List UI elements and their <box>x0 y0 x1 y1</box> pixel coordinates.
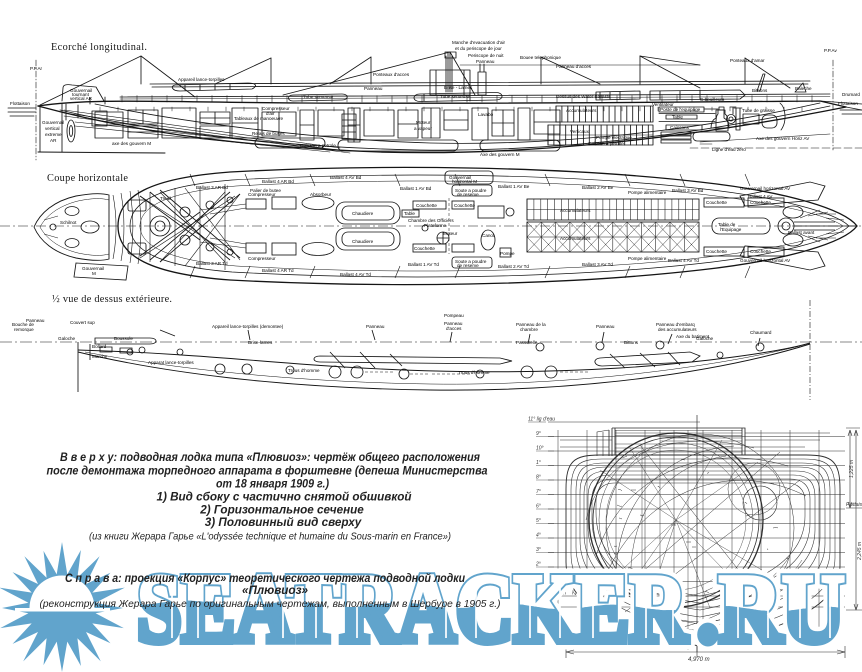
svg-text:Ballast 4 AV Td: Ballast 4 AV Td <box>668 258 699 263</box>
svg-text:Coupe horizontale: Coupe horizontale <box>47 173 128 184</box>
svg-text:Moteur: Moteur <box>416 120 431 125</box>
svg-text:C.bouilleurs: C.bouilleurs <box>700 97 725 102</box>
svg-text:Pompe: Pompe <box>500 251 515 256</box>
svg-text:Couchette: Couchette <box>706 200 727 205</box>
svg-text:horizontal M: horizontal M <box>452 179 477 184</box>
svg-text:Compresseur: Compresseur <box>248 256 276 261</box>
svg-text:11° lig d'eau: 11° lig d'eau <box>528 417 555 423</box>
svg-text:Couchette: Couchette <box>750 200 771 205</box>
svg-text:Galoche: Galoche <box>58 336 76 341</box>
svg-text:Absorbeur: Absorbeur <box>310 192 332 197</box>
svg-text:Tube serveuse: Tube serveuse <box>440 94 471 99</box>
svg-text:Pompe alimentaire: Pompe alimentaire <box>628 190 667 195</box>
svg-text:Accumulateurs: Accumulateurs <box>560 208 591 213</box>
svg-text:Galoche: Galoche <box>696 336 714 341</box>
svg-text:Bollard: Bollard <box>92 344 107 349</box>
svg-text:4°: 4° <box>536 533 541 539</box>
svg-text:Treuil: Treuil <box>160 196 171 201</box>
svg-text:P.P.Ar: P.P.Ar <box>30 66 43 71</box>
svg-text:Couchette: Couchette <box>454 203 475 208</box>
svg-text:Trous d'homme: Trous d'homme <box>458 370 490 375</box>
svg-text:Relais de buses: Relais de buses <box>252 131 285 136</box>
svg-text:Flottaison: Flottaison <box>10 101 30 106</box>
svg-text:Marche: Marche <box>92 354 108 359</box>
svg-text:d'acces: d'acces <box>446 326 462 331</box>
svg-text:Accumulateurs: Accumulateurs <box>566 108 597 113</box>
svg-text:В в е р х у: подводная лодка т: В в е р х у: подводная лодка типа «Плюви… <box>60 451 480 464</box>
svg-text:Moteur: Moteur <box>443 231 458 236</box>
svg-text:Bithons: Bithons <box>752 88 768 93</box>
svg-text:P.P.Av: P.P.Av <box>824 48 837 53</box>
svg-text:Chaudiere: Chaudiere <box>352 239 374 244</box>
svg-text:Appareil lance-torpilles: Appareil lance-torpilles <box>178 77 225 82</box>
svg-text:6°: 6° <box>536 504 541 510</box>
svg-text:Panneau: Panneau <box>364 86 383 91</box>
svg-text:Dessus des Water-ballasts: Dessus des Water-ballasts <box>556 94 611 99</box>
svg-text:9°: 9° <box>536 431 541 437</box>
svg-text:Apparat lance-torpilles: Apparat lance-torpilles <box>148 360 194 365</box>
svg-text:от 18 января 1909 г.): от 18 января 1909 г.) <box>216 478 329 491</box>
svg-text:10°: 10° <box>536 446 544 452</box>
svg-text:Palier de butee: Palier de butee <box>250 188 281 193</box>
svg-text:Ponteaux d'acces: Ponteaux d'acces <box>373 72 410 77</box>
svg-text:Ballast 4 AR Td: Ballast 4 AR Td <box>262 268 294 273</box>
svg-text:Drumard: Drumard <box>842 92 860 97</box>
svg-text:Caisson a petrole: Caisson a petrole <box>300 143 336 148</box>
svg-text:Brise - Lames: Brise - Lames <box>444 85 473 90</box>
svg-text:de reserve: de reserve <box>457 192 479 197</box>
svg-text:AR: AR <box>50 138 57 143</box>
svg-text:extreme: extreme <box>45 132 62 137</box>
svg-text:Ballast 2 AV Td: Ballast 2 AV Td <box>498 264 529 269</box>
svg-text:Brise-lames: Brise-lames <box>248 340 273 345</box>
svg-text:Couchette: Couchette <box>706 249 727 254</box>
svg-text:3) Половинный вид сверху: 3) Половинный вид сверху <box>205 516 362 529</box>
svg-text:Bouee telephonique: Bouee telephonique <box>520 55 561 60</box>
svg-text:Plateforme: Plateforme <box>424 223 447 228</box>
svg-text:Ballast 1 AV Be: Ballast 1 AV Be <box>498 184 530 189</box>
svg-text:Panneau: Panneau <box>26 318 45 323</box>
svg-text:Gouvernail horizontal AV: Gouvernail horizontal AV <box>740 258 791 263</box>
svg-text:Ballast 3 AV Bd: Ballast 3 AV Bd <box>672 188 704 193</box>
svg-text:Caisson a petrole: Caisson a petrole <box>588 141 624 146</box>
svg-text:Ecorché longitudinal.: Ecorché longitudinal. <box>51 42 147 53</box>
svg-text:remorque: remorque <box>14 327 34 332</box>
svg-text:Accumulateurs: Accumulateurs <box>560 236 591 241</box>
svg-text:Gouvernail horizontal AV: Gouvernail horizontal AV <box>740 186 791 191</box>
svg-text:de reserve: de reserve <box>457 263 479 268</box>
svg-text:Panneau: Panneau <box>476 59 495 64</box>
svg-text:Pompeau: Pompeau <box>444 313 464 318</box>
svg-text:3°: 3° <box>536 547 541 553</box>
svg-text:Manche d'evacuation d'air: Manche d'evacuation d'air <box>452 40 506 45</box>
svg-text:Chaudiere: Chaudiere <box>352 211 374 216</box>
svg-text:Gouvernail: Gouvernail <box>42 120 64 125</box>
svg-text:Trous d'homme: Trous d'homme <box>288 368 320 373</box>
svg-text:(из книги Жерара Гарье «L'odys: (из книги Жерара Гарье «L'odyssée techni… <box>89 532 451 543</box>
svg-text:Couchette: Couchette <box>414 246 435 251</box>
svg-text:Ballast avant: Ballast avant <box>788 230 815 235</box>
svg-text:Ballast 3 AV Td: Ballast 3 AV Td <box>582 262 613 267</box>
svg-text:после демонтажа торпедного апп: после демонтажа торпедного аппарата в фо… <box>47 465 488 478</box>
svg-text:l'Equipage: l'Equipage <box>720 227 742 232</box>
svg-text:2) Горизонтальное сечение: 2) Горизонтальное сечение <box>199 504 364 517</box>
svg-text:2,245 m: 2,245 m <box>857 542 862 561</box>
svg-text:Ballast 1 AV Td: Ballast 1 AV Td <box>408 262 439 267</box>
svg-text:Chaumard: Chaumard <box>750 330 772 335</box>
svg-text:Ventilateur: Ventilateur <box>652 102 674 107</box>
svg-text:Axe des gouvern Horiz AV: Axe des gouvern Horiz AV <box>756 136 810 141</box>
svg-text:Bittons: Bittons <box>624 340 639 345</box>
svg-text:Panneau: Panneau <box>596 324 615 329</box>
svg-text:Ballast 2 AV Be: Ballast 2 AV Be <box>582 185 614 190</box>
svg-text:Panneau: Panneau <box>366 324 385 329</box>
svg-text:1°: 1° <box>536 460 541 466</box>
svg-text:Poste de l'equipage: Poste de l'equipage <box>660 107 701 112</box>
svg-text:Couvert sup: Couvert sup <box>70 320 95 325</box>
svg-text:Ballast 3 AR Td: Ballast 3 AR Td <box>196 261 228 266</box>
svg-text:Passerelle: Passerelle <box>516 340 538 345</box>
svg-text:«Плювиоз»: «Плювиоз» <box>242 584 309 597</box>
svg-text:et du periscope de jour: et du periscope de jour <box>455 46 502 51</box>
svg-text:7°: 7° <box>536 489 541 495</box>
svg-text:axe des gouvern M: axe des gouvern M <box>112 141 151 146</box>
svg-text:Boussole: Boussole <box>114 336 133 341</box>
svg-text:Ponteaux d'amar: Ponteaux d'amar <box>730 58 765 63</box>
svg-text:Flottaison: Flottaison <box>846 502 862 508</box>
svg-text:Ligne d'eau zero: Ligne d'eau zero <box>712 147 746 152</box>
svg-text:Table: Table <box>672 115 683 120</box>
svg-text:8°: 8° <box>536 475 541 481</box>
svg-text:Ballast 4 AV Bd: Ballast 4 AV Bd <box>330 175 362 180</box>
svg-text:5°: 5° <box>536 518 541 524</box>
svg-text:chambre: chambre <box>520 327 538 332</box>
svg-text:1,225 m: 1,225 m <box>849 460 855 478</box>
svg-text:vertical: vertical <box>45 126 60 131</box>
svg-text:Axe des gouvern M: Axe des gouvern M <box>480 152 520 157</box>
svg-text:Table: Table <box>404 211 415 216</box>
svg-text:Ballast 3 AR Bd: Ballast 3 AR Bd <box>196 185 228 190</box>
svg-text:Pompe alimentaire: Pompe alimentaire <box>628 256 667 261</box>
svg-text:des accumulateurs: des accumulateurs <box>658 327 697 332</box>
svg-text:Ballast 4 AV: Ballast 4 AV <box>748 194 773 199</box>
svg-text:Couchette: Couchette <box>750 249 771 254</box>
svg-text:Schilnot: Schilnot <box>60 220 77 225</box>
svg-text:Periscope de nuit: Periscope de nuit <box>468 53 504 58</box>
svg-text:Lavabo: Lavabo <box>478 112 494 117</box>
svg-text:a vapeur: a vapeur <box>414 126 432 131</box>
svg-text:(реконструкция Жерара Гарье по: (реконструкция Жерара Гарье по оригиналь… <box>40 598 501 610</box>
svg-text:Ballast 1 AV Bd: Ballast 1 AV Bd <box>400 186 432 191</box>
svg-text:Ballast 4 AR Bd: Ballast 4 AR Bd <box>262 179 294 184</box>
svg-text:Couchette: Couchette <box>416 203 437 208</box>
svg-text:Tube de graisse: Tube de graisse <box>742 108 775 113</box>
svg-text:Flottaison: Flottaison <box>838 101 858 106</box>
svg-text:vertical AR: vertical AR <box>70 96 93 101</box>
svg-text:Tableaux de manoeuvre: Tableaux de manoeuvre <box>234 116 283 121</box>
svg-text:Pompe electrique: Pompe electrique <box>596 135 632 140</box>
svg-text:½ vue de dessus extérieure.: ½ vue de dessus extérieure. <box>52 294 172 305</box>
svg-text:Canot: Canot <box>482 233 495 238</box>
svg-text:Caissons: Caissons <box>670 125 690 130</box>
svg-text:Panneau d'acces: Panneau d'acces <box>556 64 592 69</box>
svg-text:Verticaux: Verticaux <box>570 129 590 134</box>
svg-text:d'air: d'air <box>266 111 275 116</box>
svg-text:Baleche: Baleche <box>795 86 812 91</box>
svg-text:Appareil lance-torpilles (dem: Appareil lance-torpilles (demontee) <box>212 324 284 329</box>
svg-text:Ballast 4 AV Td: Ballast 4 AV Td <box>340 272 371 277</box>
svg-text:Tube serveuse: Tube serveuse <box>303 95 334 100</box>
svg-text:M: M <box>92 271 96 276</box>
svg-text:1) Вид сбоку с частично снятой: 1) Вид сбоку с частично снятой обшивкой <box>156 491 411 504</box>
